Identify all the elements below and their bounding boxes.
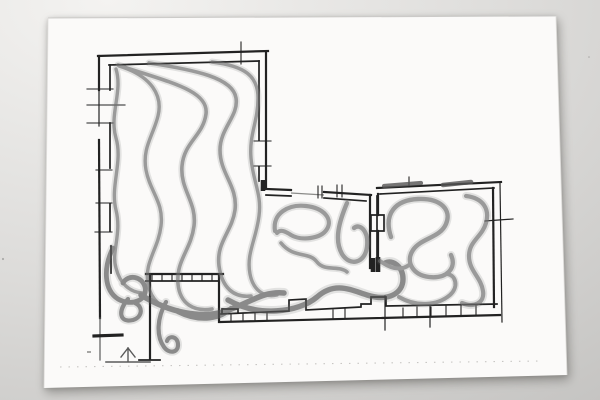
dust-speck [2,258,4,260]
floor-plan-sketch-photo [0,0,600,400]
photo-backdrop [0,0,600,400]
dust-speck [588,56,590,58]
threshold-dash [94,335,122,336]
